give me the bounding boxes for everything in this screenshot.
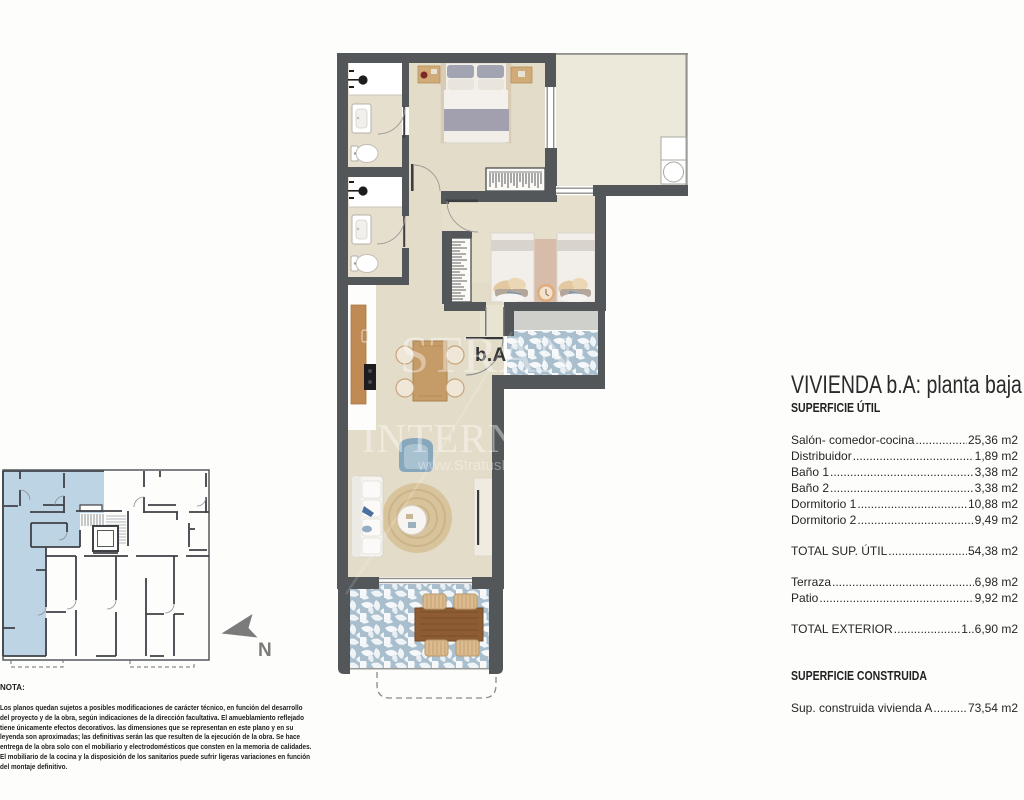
svg-text:N: N — [258, 640, 272, 661]
svg-text:www.StratusInt: www.StratusInt — [417, 457, 519, 474]
svg-text:STRAN: STRAN — [400, 327, 575, 384]
svg-text:INTERNA: INTERNA — [362, 415, 549, 461]
